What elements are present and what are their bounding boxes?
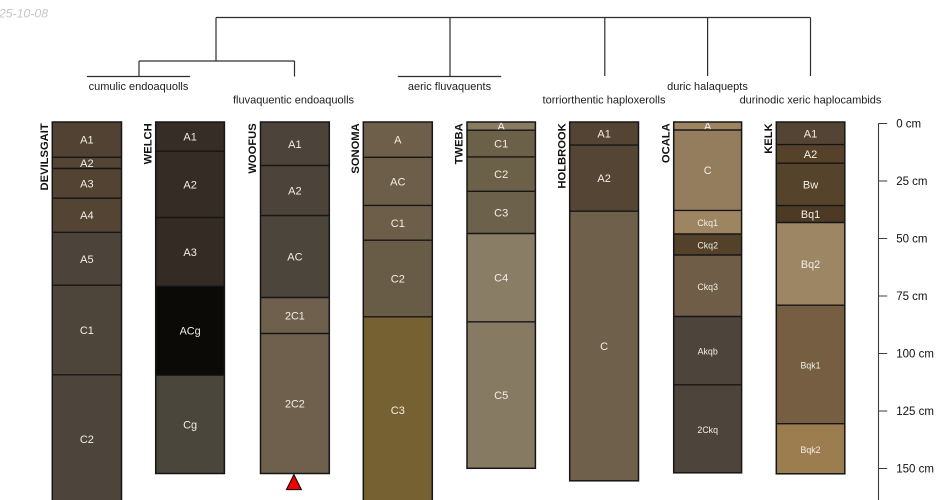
svg-text:WELCH: WELCH — [142, 123, 154, 164]
svg-text:SONOMA: SONOMA — [350, 123, 362, 173]
svg-text:A2: A2 — [183, 179, 196, 191]
svg-text:TWEBA: TWEBA — [454, 123, 466, 164]
svg-text:0 cm: 0 cm — [896, 119, 921, 131]
svg-text:A3: A3 — [80, 178, 93, 190]
svg-text:C2: C2 — [494, 169, 508, 181]
svg-text:C1: C1 — [80, 325, 94, 337]
svg-text:C: C — [704, 165, 712, 177]
svg-text:A1: A1 — [804, 128, 817, 140]
svg-text:C1: C1 — [494, 139, 508, 151]
svg-text:C3: C3 — [494, 207, 508, 219]
svg-text:Bqk1: Bqk1 — [800, 360, 820, 370]
svg-text:HOLBROOK: HOLBROOK — [556, 123, 568, 188]
svg-text:ACg: ACg — [180, 326, 201, 338]
svg-text:Bq2: Bq2 — [801, 259, 820, 271]
svg-text:DEVILSGAIT: DEVILSGAIT — [39, 123, 51, 190]
svg-text:fluvaquentic endoaquolls: fluvaquentic endoaquolls — [233, 94, 355, 106]
svg-text:C: C — [600, 341, 608, 353]
svg-text:Cg: Cg — [183, 419, 197, 431]
svg-text:duric halaquepts: duric halaquepts — [667, 81, 748, 93]
svg-text:AC: AC — [287, 252, 302, 264]
svg-text:torriorthentic haploxerolls: torriorthentic haploxerolls — [543, 94, 666, 106]
svg-text:Bq1: Bq1 — [801, 209, 820, 221]
svg-text:A3: A3 — [183, 247, 196, 259]
svg-text:A: A — [394, 135, 402, 147]
svg-text:Bqk2: Bqk2 — [800, 445, 820, 455]
svg-text:150 cm: 150 cm — [896, 464, 934, 476]
svg-text:C1: C1 — [391, 218, 405, 230]
svg-text:Ckq1: Ckq1 — [697, 218, 718, 228]
svg-text:75 cm: 75 cm — [896, 291, 927, 303]
svg-text:C5: C5 — [494, 390, 508, 402]
svg-text:25-10-08: 25-10-08 — [0, 7, 48, 21]
svg-text:durinodic xeric haplocambids: durinodic xeric haplocambids — [740, 94, 882, 106]
svg-text:KELK: KELK — [763, 123, 775, 153]
svg-text:OCALA: OCALA — [660, 123, 672, 163]
svg-text:2C2: 2C2 — [285, 399, 305, 411]
svg-text:100 cm: 100 cm — [896, 349, 934, 361]
svg-text:25 cm: 25 cm — [896, 176, 927, 188]
svg-text:Bw: Bw — [803, 179, 818, 191]
svg-text:2C1: 2C1 — [285, 311, 305, 323]
svg-text:A1: A1 — [80, 135, 93, 147]
svg-text:A5: A5 — [80, 254, 93, 266]
svg-text:C3: C3 — [391, 405, 405, 417]
svg-text:WOOFUS: WOOFUS — [247, 123, 259, 174]
svg-text:A2: A2 — [804, 149, 817, 161]
svg-text:125 cm: 125 cm — [896, 406, 934, 418]
svg-text:Akqb: Akqb — [698, 347, 718, 357]
svg-text:AC: AC — [390, 176, 405, 188]
svg-text:A1: A1 — [597, 129, 610, 141]
svg-text:A1: A1 — [288, 139, 301, 151]
svg-text:cumulic endoaquolls: cumulic endoaquolls — [89, 81, 189, 93]
svg-text:A2: A2 — [597, 173, 610, 185]
svg-text:C2: C2 — [391, 274, 405, 286]
svg-text:C4: C4 — [494, 273, 508, 285]
svg-text:aeric fluvaquents: aeric fluvaquents — [408, 81, 492, 93]
svg-text:A2: A2 — [288, 186, 301, 198]
svg-text:A4: A4 — [80, 210, 93, 222]
svg-text:Ckq3: Ckq3 — [697, 282, 718, 292]
svg-text:50 cm: 50 cm — [896, 234, 927, 246]
svg-text:Ckq2: Ckq2 — [697, 241, 718, 251]
svg-text:A1: A1 — [183, 132, 196, 144]
svg-text:2Ckq: 2Ckq — [697, 425, 718, 435]
svg-text:C2: C2 — [80, 434, 94, 446]
